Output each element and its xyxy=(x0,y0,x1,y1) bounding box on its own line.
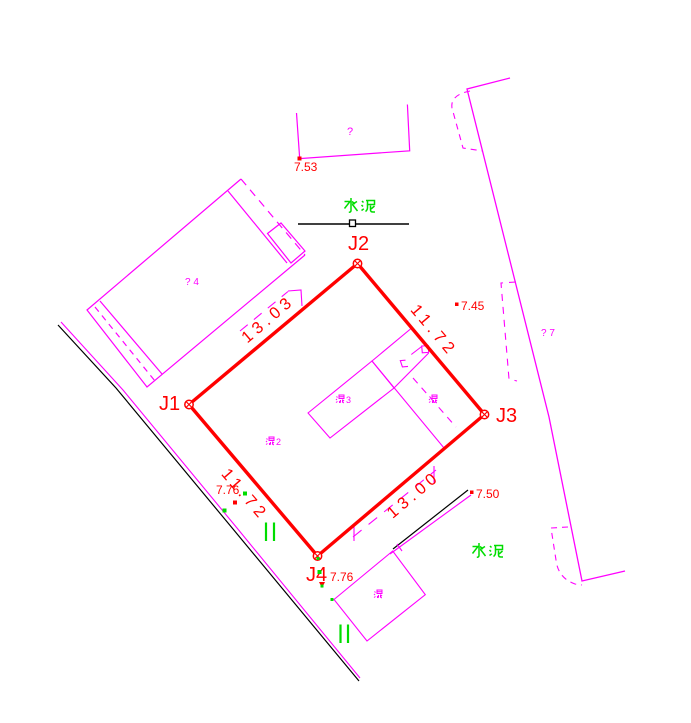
svg-text:J3: J3 xyxy=(496,405,517,427)
svg-text:2: 2 xyxy=(276,437,281,447)
svg-text:7.53: 7.53 xyxy=(294,160,318,174)
svg-text:7.76: 7.76 xyxy=(330,570,354,584)
svg-text:7.45: 7.45 xyxy=(461,299,485,313)
svg-text:? 7: ? 7 xyxy=(541,328,555,339)
svg-text:?: ? xyxy=(347,126,353,138)
svg-text:J1: J1 xyxy=(159,393,180,415)
svg-text:J2: J2 xyxy=(348,233,369,255)
svg-text:7.50: 7.50 xyxy=(476,487,500,501)
svg-text:? 4: ? 4 xyxy=(185,277,199,288)
svg-text:3: 3 xyxy=(346,395,351,405)
svg-text:7.76: 7.76 xyxy=(216,483,240,497)
